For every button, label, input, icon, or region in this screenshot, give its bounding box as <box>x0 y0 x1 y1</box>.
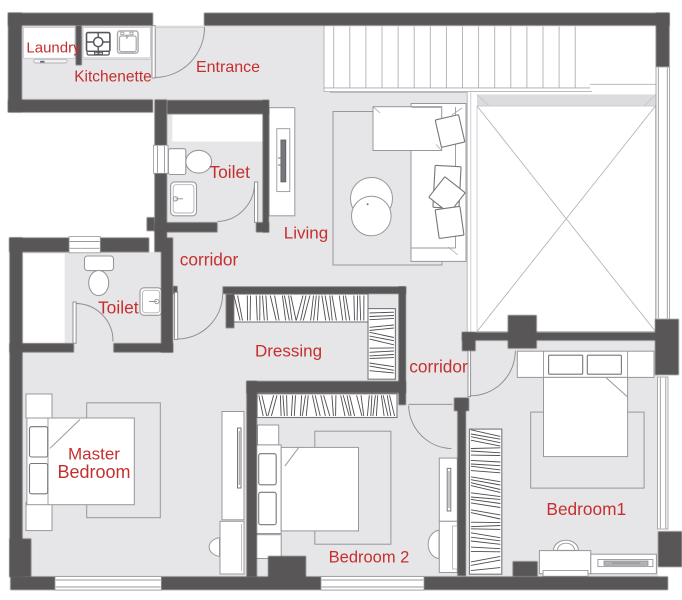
svg-text:corridor: corridor <box>180 250 239 270</box>
svg-text:Laundry: Laundry <box>26 40 81 57</box>
svg-text:corridor: corridor <box>409 357 468 377</box>
svg-text:Living: Living <box>284 224 328 243</box>
svg-text:Kitchenette: Kitchenette <box>74 69 152 86</box>
svg-text:Master: Master <box>68 445 120 464</box>
svg-text:Bedroom1: Bedroom1 <box>546 499 626 519</box>
svg-text:Toilet: Toilet <box>98 298 139 318</box>
svg-text:Toilet: Toilet <box>209 162 250 182</box>
svg-text:Dressing: Dressing <box>255 342 322 361</box>
svg-text:Bedroom: Bedroom <box>57 462 130 482</box>
svg-text:Bedroom 2: Bedroom 2 <box>329 549 410 567</box>
svg-text:Entrance: Entrance <box>196 59 260 76</box>
